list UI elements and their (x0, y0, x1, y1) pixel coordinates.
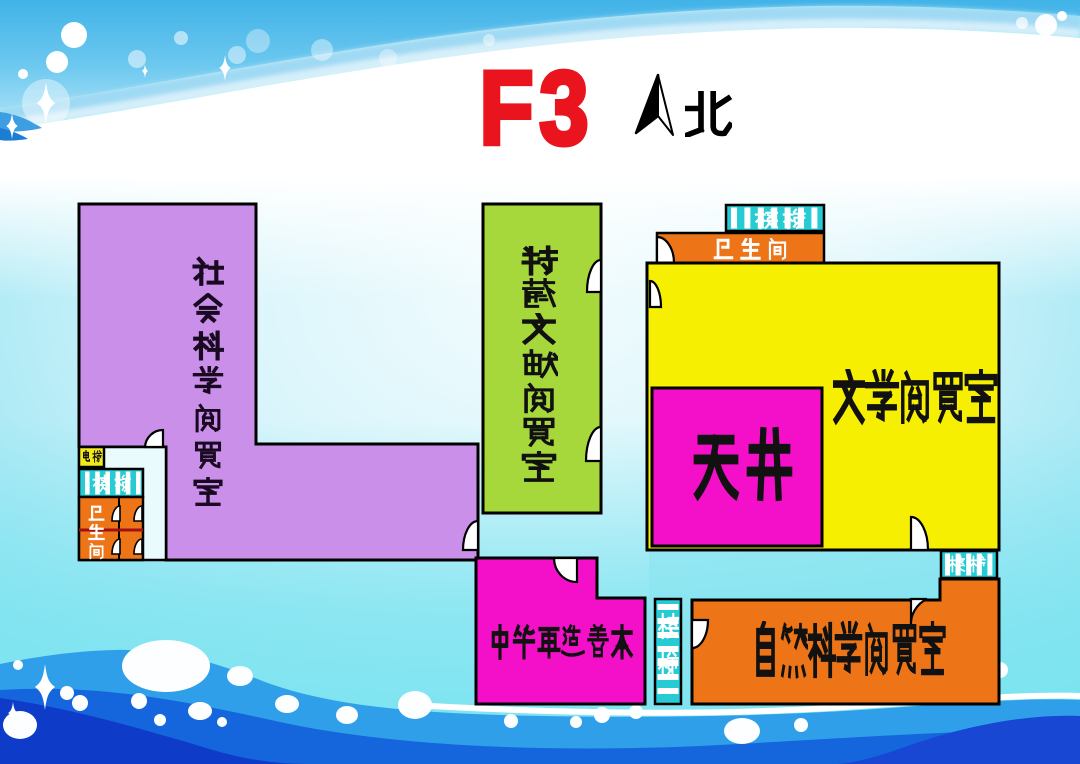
svg-text:F3: F3 (479, 51, 594, 166)
